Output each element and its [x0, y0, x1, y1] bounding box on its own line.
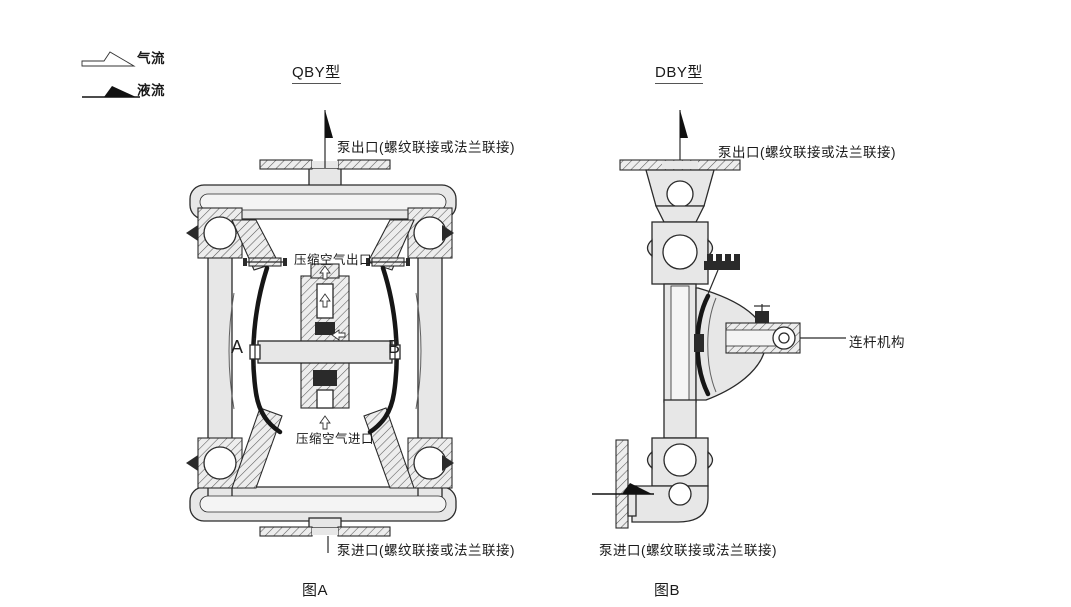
lower-check-valves [632, 400, 713, 522]
figure-a-inlet-label: 泵进口(螺纹联接或法兰联接) [337, 539, 515, 559]
figure-b-linkage-label: 连杆机构 [849, 331, 905, 351]
figure-a-outlet-label: 泵出口(螺纹联接或法兰联接) [337, 136, 515, 156]
figure-a-air-inlet-label: 压缩空气进口 [296, 428, 374, 447]
check-valve-upper-right [408, 208, 454, 258]
check-valve-ball [204, 447, 236, 479]
legend-liquid-label: 液流 [137, 79, 165, 99]
upper-check-valves [646, 170, 714, 284]
figure-a-caption: 图A [302, 579, 328, 600]
air-flow-icon [80, 48, 144, 70]
check-valve-ball [663, 235, 697, 269]
figure-b-inlet-label: 泵进口(螺纹联接或法兰联接) [599, 539, 777, 559]
check-valve-ball [669, 483, 691, 505]
check-valve-ball [414, 447, 446, 479]
diaphragm-clamp-right [366, 258, 410, 266]
figure-b-title: DBY型 [655, 61, 703, 84]
diaphragm-shaft [258, 341, 392, 363]
riser-pipe [664, 284, 696, 402]
figure-a-title: QBY型 [292, 61, 341, 84]
figure-b-outlet-label: 泵出口(螺纹联接或法兰联接) [718, 141, 896, 161]
check-valve-ball [667, 181, 693, 207]
legend-air-label: 气流 [137, 47, 165, 67]
chamber-a-label: A [231, 337, 244, 358]
chamber-b-label: B [388, 337, 401, 358]
check-valve-lower-left [186, 438, 242, 488]
muffler-fitting [704, 254, 740, 294]
figure-a-air-outlet-label: 压缩空气出口 [294, 249, 372, 268]
liquid-flow-icon [80, 80, 144, 102]
check-valve-ball [664, 444, 696, 476]
check-valve-ball [204, 217, 236, 249]
diaphragm-clamp-left [243, 258, 287, 266]
check-valve-lower-right [408, 438, 454, 488]
figure-b-caption: 图B [654, 579, 680, 600]
liquid-out-arrow-icon [680, 110, 688, 138]
qby-pump-diagram [168, 98, 478, 568]
figure-canvas: 气流 液流 QBY型 DBY型 [0, 0, 1071, 607]
dby-pump-diagram [558, 98, 888, 568]
check-valve-ball [414, 217, 446, 249]
liquid-out-arrow-icon [325, 110, 333, 138]
